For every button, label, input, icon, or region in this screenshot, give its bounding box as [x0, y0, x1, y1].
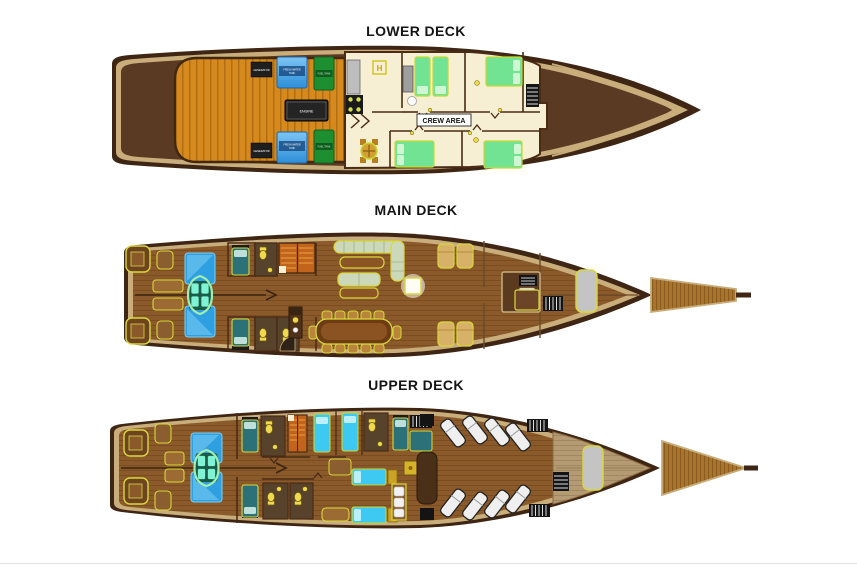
bar-counter-icon [289, 307, 302, 338]
upper-deck-plan [110, 408, 758, 529]
dumbwaiter-hatch-icon: H [373, 61, 386, 74]
deck-grate-icon [529, 504, 550, 517]
sun-pad-blue [185, 253, 215, 284]
stairs-to-main-deck [526, 84, 539, 107]
svg-text:CREW AREA: CREW AREA [423, 118, 466, 125]
double-bed-teal-icon [242, 485, 258, 518]
dinghy-icon [195, 450, 219, 486]
svg-text:ENGINE: ENGINE [300, 109, 314, 113]
deck-plan-page: LOWER DECK MAIN DECK UPPER DECK [0, 0, 857, 570]
bathroom-floor [364, 413, 388, 451]
bench-teal-icon [410, 431, 432, 451]
deck-box-icon [420, 508, 434, 520]
toilet-icon [265, 421, 272, 434]
sink-icon [277, 487, 282, 492]
deck-plans-figure: GENERATOR GENERATOR FRESH WATER TANK FRE… [0, 0, 857, 570]
sink-icon [268, 268, 273, 273]
crew-double-bed-icon [395, 141, 434, 167]
fresh-water-tank-icon: FRESH WATER TANK [277, 57, 307, 88]
svg-text:FUEL TANK: FUEL TANK [318, 73, 331, 76]
upper-deck-title: UPPER DECK [0, 377, 832, 393]
toilet-icon [294, 492, 301, 505]
fresh-water-tank-icon: FRESH WATER TANK [277, 132, 307, 163]
deck-grate-icon [543, 296, 563, 311]
double-bed-teal-icon [232, 245, 249, 275]
staircase-icon [279, 243, 315, 273]
fuel-tank-icon: FUEL TANK [314, 57, 334, 90]
crew-double-bed-icon [486, 57, 522, 86]
light-fixture-icon [408, 97, 417, 106]
lower-deck-plan: GENERATOR GENERATOR FRESH WATER TANK FRE… [112, 46, 701, 175]
lamp-table-icon [401, 274, 425, 298]
sideboard-icon [340, 257, 384, 268]
galley-counter [347, 60, 360, 94]
settee-icon [165, 452, 184, 465]
crew-single-bed-icon [433, 57, 448, 96]
single-bed-cyan-icon [352, 507, 386, 523]
crew-single-bed-icon [415, 57, 430, 96]
seat-icon [155, 424, 171, 443]
main-deck-plan [124, 233, 751, 358]
chest-icon [329, 459, 351, 475]
svg-text:H: H [377, 64, 383, 73]
bathroom-floor [263, 483, 288, 519]
sun-pad-gray [583, 446, 603, 490]
svg-text:FUEL TANK: FUEL TANK [318, 146, 331, 149]
stern-sun-pads-and-dinghy [191, 433, 222, 502]
sun-pad-gray [576, 270, 597, 312]
armchair-icon [124, 430, 148, 456]
generator-label: GENERATOR [253, 68, 269, 72]
seat-icon [157, 321, 173, 339]
dinghy-icon [188, 276, 212, 314]
settee-icon [322, 508, 349, 521]
seat-icon [155, 491, 171, 510]
wheelhouse [502, 272, 540, 312]
bathroom-floor [261, 416, 285, 456]
wheelhouse-roof-panel [417, 452, 437, 504]
wardrobe-icon [388, 470, 397, 484]
stern-sun-pads-and-dinghy [185, 253, 215, 337]
page-bottom-border [0, 563, 857, 564]
armchair-icon [126, 246, 150, 272]
bowsprit [651, 278, 751, 312]
sun-pad-blue [185, 306, 215, 337]
sink-icon [378, 442, 383, 447]
seat-icon [157, 251, 173, 269]
engine-room: GENERATOR GENERATOR FRESH WATER TANK FRE… [175, 57, 345, 163]
bowsprit [662, 441, 758, 495]
lower-deck-title: LOWER DECK [0, 23, 832, 39]
crew-quarters: H [345, 52, 547, 168]
wheelhouse-hatch [515, 290, 539, 310]
locker [403, 66, 413, 92]
cabinet-icon [392, 484, 406, 520]
double-bed-teal-icon [242, 417, 258, 452]
single-bed-cyan-icon [342, 413, 358, 451]
sink-icon [273, 445, 278, 450]
single-bed-cyan-icon [352, 469, 386, 485]
settee-icon [153, 298, 183, 310]
crew-area-label: CREW AREA [417, 114, 471, 126]
staircase-icon [288, 415, 307, 452]
toilet-icon [259, 328, 266, 341]
coffee-table-icon [340, 288, 378, 298]
armchair-icon [124, 478, 148, 504]
crew-double-bed-icon [484, 141, 522, 168]
double-bed-teal-icon [393, 415, 408, 450]
double-bed-teal-icon [232, 319, 249, 350]
single-bed-cyan-icon [314, 414, 330, 452]
armchair-icon [126, 318, 150, 344]
toilet-icon [259, 247, 266, 260]
svg-text:TANK: TANK [289, 147, 296, 150]
deck-grate-icon [527, 419, 548, 432]
helm-console-icon [519, 275, 537, 286]
deck-grate-icon [553, 472, 569, 491]
main-deck-title: MAIN DECK [0, 202, 832, 218]
settee-icon [153, 280, 183, 292]
generator-label: GENERATOR [253, 149, 269, 153]
sofa-icon [338, 273, 380, 286]
settee-icon [165, 469, 184, 482]
toilet-icon [368, 419, 375, 432]
dinette-table-icon [360, 139, 378, 163]
fuel-tank-icon: FUEL TANK [314, 130, 334, 163]
deck-box-icon [420, 414, 434, 426]
svg-text:TANK: TANK [289, 72, 296, 75]
sink-icon [303, 487, 308, 492]
toilet-icon [267, 492, 274, 505]
stove-icon [346, 95, 363, 114]
engine-icon: ENGINE [285, 100, 328, 121]
console-box-icon [404, 461, 417, 475]
